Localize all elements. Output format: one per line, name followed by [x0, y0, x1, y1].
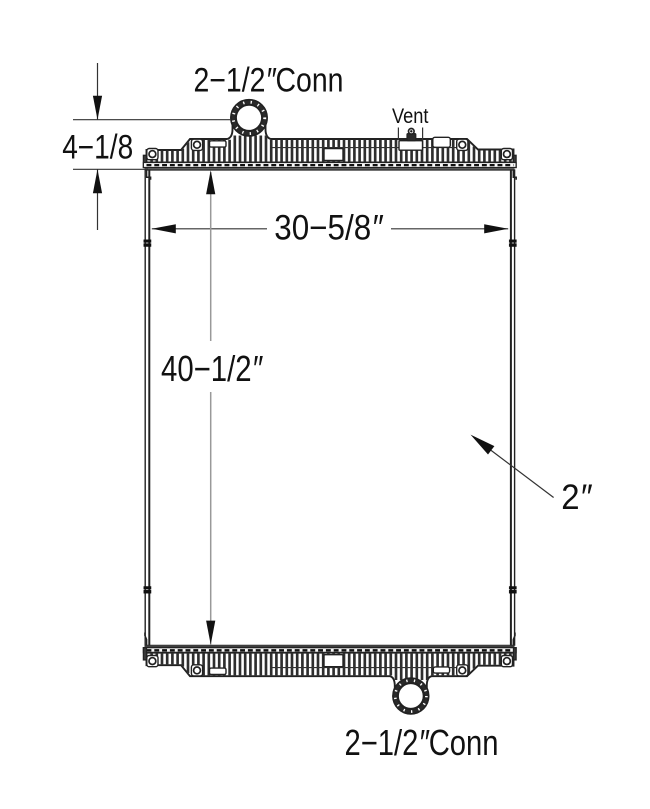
svg-text:2−1/2″Conn: 2−1/2″Conn — [194, 62, 344, 100]
svg-text:2−1/2″Conn: 2−1/2″Conn — [345, 722, 499, 763]
svg-text:40−1/2″: 40−1/2″ — [161, 348, 263, 389]
svg-text:2″: 2″ — [561, 478, 593, 517]
svg-text:4−1/8: 4−1/8 — [62, 128, 133, 166]
svg-text:30−5/8″: 30−5/8″ — [274, 208, 383, 247]
svg-text:Vent: Vent — [392, 104, 429, 128]
